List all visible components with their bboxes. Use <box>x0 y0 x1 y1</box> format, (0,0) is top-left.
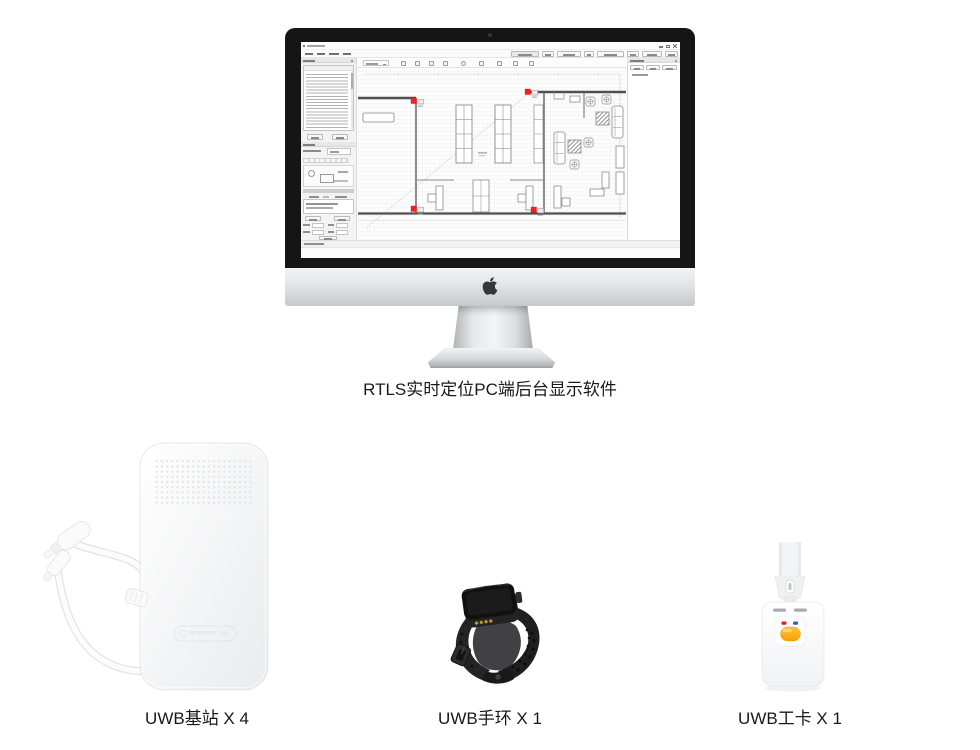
dimension-text-placeholder <box>478 152 487 156</box>
coordinate-list[interactable] <box>303 199 354 214</box>
uwb-anchor-image <box>30 428 280 700</box>
monitor-chin <box>285 268 695 306</box>
right-panel <box>627 58 680 240</box>
toolbar-button[interactable] <box>511 51 539 57</box>
speaker-grille <box>154 458 254 504</box>
select-tool-icon[interactable] <box>415 61 420 66</box>
label-placeholder <box>650 68 657 70</box>
reference-lines <box>364 74 620 218</box>
x-input[interactable] <box>312 223 324 228</box>
toolbar-button[interactable] <box>642 51 662 57</box>
label-placeholder <box>666 68 673 70</box>
text-placeholder <box>309 196 319 198</box>
monitor-stand-neck <box>453 306 533 350</box>
list-action-button[interactable] <box>307 134 323 140</box>
toolbar-dropdown[interactable] <box>542 51 554 57</box>
zoom-in-icon[interactable] <box>429 61 434 66</box>
pan-tool-icon[interactable] <box>401 61 406 66</box>
floor-plan-area[interactable] <box>358 68 626 240</box>
text-placeholder <box>323 196 329 198</box>
led-red <box>782 622 787 625</box>
measure-tool-icon[interactable] <box>479 61 484 66</box>
label-placeholder <box>336 137 344 139</box>
ruler-ticks <box>398 74 598 76</box>
layer-tool-icon[interactable] <box>497 61 502 66</box>
value-placeholder <box>330 151 339 153</box>
field-label-placeholder <box>328 231 334 233</box>
panel-title-placeholder <box>303 144 315 146</box>
label-uwb-wristband: UWB手环 X 1 <box>330 708 650 730</box>
toolbar-button[interactable] <box>597 51 624 57</box>
list-header-row <box>304 66 353 71</box>
apple-logo-icon <box>482 276 498 296</box>
window-title-bar <box>301 42 680 50</box>
branch-tool-icon[interactable] <box>461 61 466 66</box>
label-placeholder <box>634 68 641 70</box>
badge-slot <box>773 609 786 612</box>
list-row-placeholder <box>306 203 338 205</box>
menu-item[interactable] <box>343 53 351 55</box>
toolbar-dropdown[interactable] <box>584 51 594 57</box>
anchor-list[interactable] <box>303 65 354 131</box>
grid-toggle-icon[interactable] <box>513 61 518 66</box>
w-input[interactable] <box>312 230 324 235</box>
status-bar <box>301 240 680 247</box>
strap-pin <box>496 675 500 679</box>
refresh-icon[interactable] <box>529 61 534 66</box>
field-label-placeholder <box>328 224 334 226</box>
zoom-out-icon[interactable] <box>443 61 448 66</box>
walls <box>358 92 626 214</box>
menu-item[interactable] <box>305 53 313 55</box>
label-placeholder <box>338 219 346 221</box>
panel-button[interactable] <box>305 216 321 221</box>
product-showcase-page: RTLS实时定位PC端后台显示软件 <box>0 0 980 750</box>
label-placeholder <box>311 137 319 139</box>
monitor-bezel <box>285 28 695 268</box>
text-placeholder <box>335 196 347 198</box>
label-placeholder <box>668 54 674 56</box>
toolbar-button[interactable] <box>665 51 678 57</box>
panel-close-icon[interactable] <box>351 60 353 62</box>
label-placeholder <box>647 54 657 56</box>
software-screen <box>301 42 680 258</box>
list-rows-placeholder[interactable] <box>306 72 348 128</box>
list-scrollbar[interactable] <box>351 71 354 129</box>
panel-title-placeholder <box>303 60 315 62</box>
field-label-placeholder <box>303 224 310 226</box>
preview-text-placeholder <box>334 180 348 182</box>
right-panel-tab[interactable] <box>662 65 677 70</box>
sos-button <box>781 627 801 641</box>
uwb-wristband-image <box>440 578 560 690</box>
close-button[interactable] <box>673 44 677 48</box>
right-panel-tab[interactable] <box>630 65 644 70</box>
label-placeholder <box>563 54 575 56</box>
panel-title-placeholder <box>630 60 644 62</box>
right-panel-tab[interactable] <box>646 65 660 70</box>
label-placeholder <box>545 54 551 56</box>
toolbar-button[interactable] <box>557 51 581 57</box>
toolbar-dropdown[interactable] <box>627 51 639 57</box>
monitor-stand-base <box>428 348 555 368</box>
menu-item[interactable] <box>317 53 325 55</box>
windows-taskbar <box>301 247 680 258</box>
panel-close-icon[interactable] <box>675 60 677 62</box>
list-action-button[interactable] <box>332 134 348 140</box>
anchor-marker[interactable] <box>525 89 538 98</box>
canvas-toolbar <box>358 58 626 68</box>
status-text-placeholder <box>304 243 324 245</box>
furniture <box>363 96 624 212</box>
right-panel-text-placeholder <box>632 74 648 76</box>
watch-back <box>473 620 521 671</box>
progress-bar <box>303 189 354 193</box>
value-input[interactable] <box>327 148 351 155</box>
monitor-caption: RTLS实时定位PC端后台显示软件 <box>0 380 980 400</box>
h-input[interactable] <box>336 230 348 235</box>
field-label-placeholder <box>303 231 310 233</box>
label-uwb-anchor: UWB基站 X 4 <box>37 708 357 730</box>
badge-lanyard <box>775 542 805 608</box>
uwb-badge-image <box>740 542 850 694</box>
watch-face <box>461 582 525 629</box>
value-placeholder <box>366 63 378 65</box>
preview-glyph <box>308 170 315 177</box>
maximize-button[interactable] <box>666 45 670 49</box>
menu-item[interactable] <box>329 53 339 55</box>
mini-button-row[interactable] <box>303 158 348 163</box>
label-placeholder <box>630 54 636 56</box>
y-input[interactable] <box>336 223 348 228</box>
preview-text-placeholder <box>338 171 348 173</box>
zoom-select[interactable] <box>363 60 389 66</box>
preview-thumbnail <box>303 165 354 187</box>
label-uwb-badge: UWB工卡 X 1 <box>630 708 950 730</box>
app-icon <box>303 45 305 47</box>
window-title-placeholder <box>307 45 325 47</box>
minimize-button[interactable] <box>659 46 663 48</box>
badge-slot <box>794 609 807 612</box>
label-placeholder <box>518 54 532 56</box>
field-label-placeholder <box>303 150 321 152</box>
seating-groups <box>554 95 623 169</box>
list-row-placeholder <box>306 207 333 209</box>
scrollbar-thumb[interactable] <box>351 73 354 89</box>
label-placeholder <box>309 219 317 221</box>
webcam-icon <box>488 33 492 37</box>
floor-plan-drawing <box>358 68 626 240</box>
label-placeholder <box>587 54 591 56</box>
label-placeholder <box>604 54 618 56</box>
chevron-down-icon <box>383 64 386 66</box>
imac-monitor <box>285 28 695 368</box>
anchor-marker[interactable] <box>411 98 424 107</box>
button-highlight <box>782 629 792 633</box>
panel-button[interactable] <box>334 216 350 221</box>
preview-glyph <box>320 174 334 183</box>
led-blue <box>793 622 798 625</box>
